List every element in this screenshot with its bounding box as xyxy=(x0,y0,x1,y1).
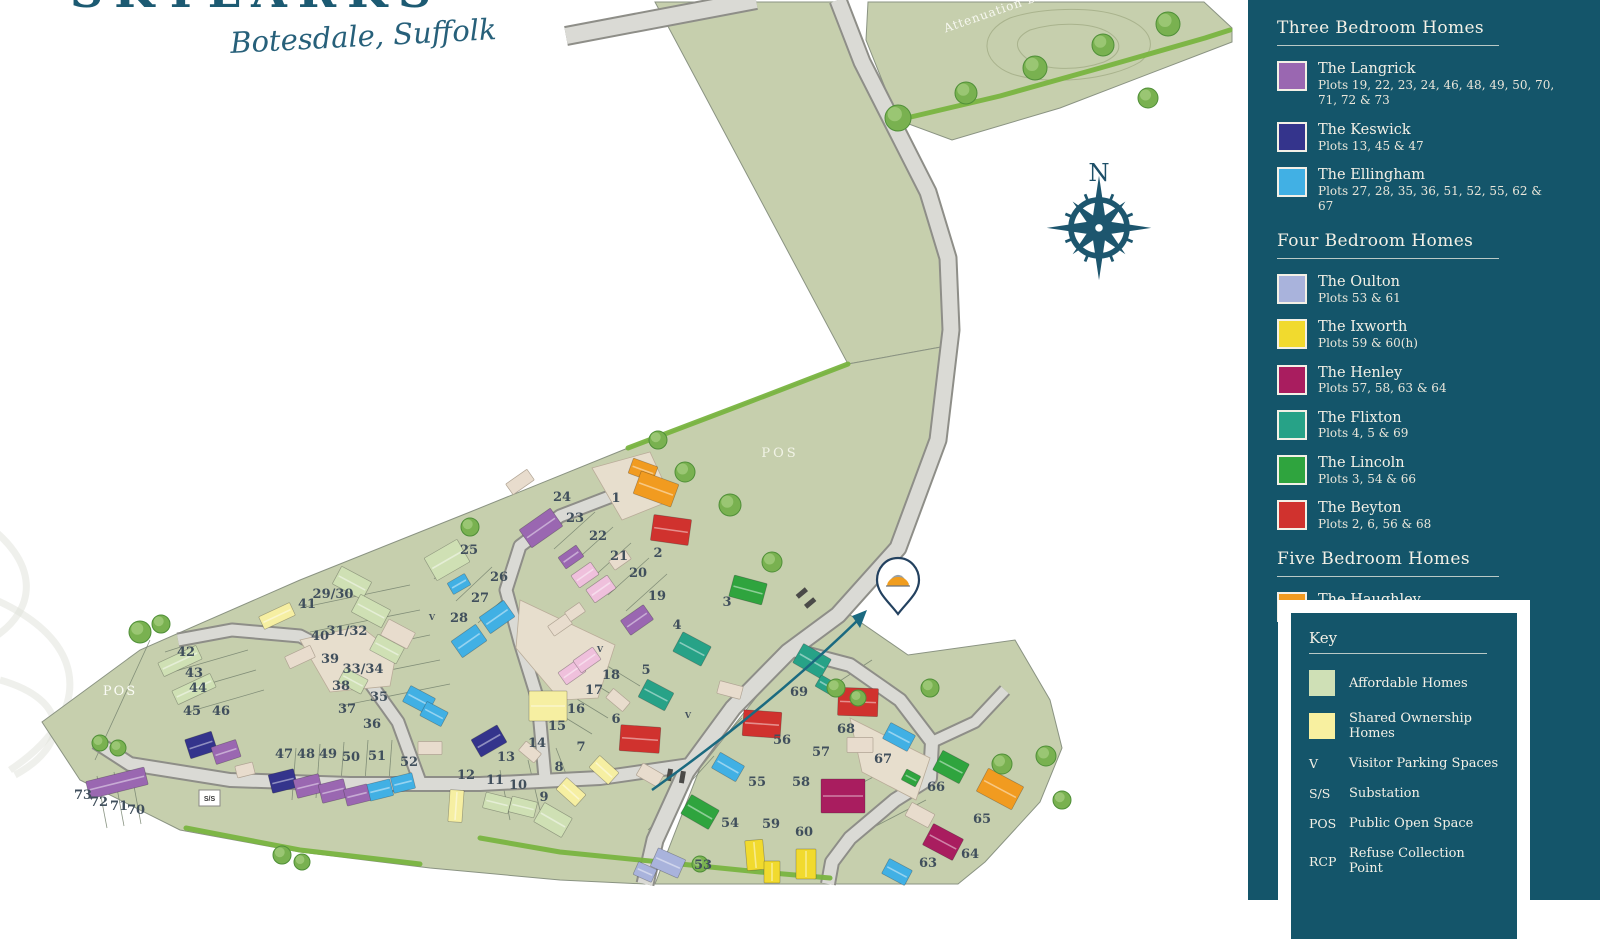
plot-number: 11 xyxy=(486,773,504,788)
section-heading-three-bed: Three Bedroom Homes xyxy=(1277,18,1572,38)
key-row-refuse-collection: RCP Refuse Collection Point xyxy=(1309,846,1499,876)
house-type-name: The Henley xyxy=(1318,365,1447,382)
house xyxy=(448,790,464,823)
house xyxy=(821,779,865,813)
substation-marker: S/S xyxy=(199,790,220,806)
plot-number: 31/32 xyxy=(327,624,368,639)
house-type-name: The Ellingham xyxy=(1318,167,1558,184)
house xyxy=(764,861,780,883)
heading-rule xyxy=(1277,258,1499,259)
legend-item-ellingham: The Ellingham Plots 27, 28, 35, 36, 51, … xyxy=(1277,167,1572,215)
langrick-swatch xyxy=(1277,61,1307,91)
keswick-swatch xyxy=(1277,122,1307,152)
plot-number: 59 xyxy=(762,817,780,832)
plot-number: 69 xyxy=(790,685,808,700)
plot-number: 41 xyxy=(298,597,316,612)
plot-number: 24 xyxy=(553,490,571,505)
key-row-affordable: Affordable Homes xyxy=(1309,670,1499,696)
oulton-swatch xyxy=(1277,274,1307,304)
tree-icon xyxy=(1156,12,1180,36)
plot-number: 9 xyxy=(539,790,548,805)
henley-swatch xyxy=(1277,365,1307,395)
house-type-plots: Plots 4, 5 & 69 xyxy=(1318,426,1408,442)
plot-number: 27 xyxy=(471,591,489,606)
plot-number: 33/34 xyxy=(343,662,384,677)
heading-rule xyxy=(1277,45,1499,46)
site-plan-page: { "title": {"name": "SKYLARKS", "locatio… xyxy=(0,0,1600,900)
tree-icon xyxy=(92,735,108,751)
ellingham-swatch xyxy=(1277,167,1307,197)
tree-icon xyxy=(992,754,1012,774)
development-brand: SKYLARKS Botesdale, Suffolk xyxy=(70,0,500,53)
plot-number: 54 xyxy=(721,816,739,831)
house-type-plots: Plots 53 & 61 xyxy=(1318,291,1401,307)
plot-number: 29/30 xyxy=(313,587,354,602)
tree-icon xyxy=(850,690,866,706)
ixworth-swatch xyxy=(1277,319,1307,349)
house xyxy=(619,725,661,754)
tree-icon xyxy=(955,82,977,104)
decorative-arc xyxy=(0,520,26,640)
tree-icon xyxy=(1092,34,1114,56)
plot-number: 36 xyxy=(363,717,381,732)
plot-number: 49 xyxy=(319,747,337,762)
tree-icon xyxy=(675,462,695,482)
tree-icon xyxy=(762,552,782,572)
key-panel: Key Affordable Homes Shared Ownership Ho… xyxy=(1278,600,1530,952)
legend-item-beyton: The Beyton Plots 2, 6, 56 & 68 xyxy=(1277,500,1572,532)
development-location: Botesdale, Suffolk xyxy=(229,12,500,60)
house-type-name: The Oulton xyxy=(1318,274,1401,291)
plot-number: 4 xyxy=(672,618,681,633)
tree-icon xyxy=(129,621,151,643)
plot-number: 23 xyxy=(566,511,584,526)
tree-icon xyxy=(110,740,126,756)
legend-sidebar: Three Bedroom Homes The Langrick Plots 1… xyxy=(1248,0,1600,900)
legend-item-henley: The Henley Plots 57, 58, 63 & 64 xyxy=(1277,365,1572,397)
svg-text:S/S: S/S xyxy=(204,796,216,803)
legend-item-lincoln: The Lincoln Plots 3, 54 & 66 xyxy=(1277,455,1572,487)
key-label: Substation xyxy=(1349,786,1420,801)
plot-number: 19 xyxy=(648,589,666,604)
flixton-swatch xyxy=(1277,410,1307,440)
house xyxy=(796,849,816,879)
plot-number: 58 xyxy=(792,775,810,790)
plot-number: 13 xyxy=(497,750,515,765)
plot-number: 64 xyxy=(961,847,979,862)
plot-number: 21 xyxy=(610,549,628,564)
plot-number: 47 xyxy=(275,747,293,762)
plot-number: 50 xyxy=(342,750,360,765)
legend-item-flixton: The Flixton Plots 4, 5 & 69 xyxy=(1277,410,1572,442)
key-label: Refuse Collection Point xyxy=(1349,846,1499,876)
plot-number: 6 xyxy=(611,712,620,727)
key-label: Public Open Space xyxy=(1349,816,1473,831)
tree-icon xyxy=(649,431,667,449)
garage-block xyxy=(418,742,442,755)
tree-icon xyxy=(461,518,479,536)
key-symbol: POS xyxy=(1309,816,1339,831)
visitor-parking-label: V xyxy=(596,644,604,654)
pos-label-left: POS xyxy=(103,684,137,699)
plot-number: 46 xyxy=(212,704,230,719)
legend-item-langrick: The Langrick Plots 19, 22, 23, 24, 46, 4… xyxy=(1277,61,1572,109)
key-row-visitor-parking: V Visitor Parking Spaces xyxy=(1309,756,1499,771)
plot-number: 39 xyxy=(321,652,339,667)
tree-icon xyxy=(1036,746,1056,766)
house-type-plots: Plots 3, 54 & 66 xyxy=(1318,472,1416,488)
key-symbol: RCP xyxy=(1309,854,1339,869)
plot-number: 3 xyxy=(722,595,731,610)
plot-number: 42 xyxy=(177,645,195,660)
tree-icon xyxy=(273,846,291,864)
house xyxy=(529,691,567,721)
key-heading: Key xyxy=(1309,629,1499,647)
plot-number: 7 xyxy=(576,740,585,755)
key-symbol: V xyxy=(1309,756,1339,771)
plot-number: 16 xyxy=(567,702,585,717)
tree-icon xyxy=(152,615,170,633)
house-type-name: The Lincoln xyxy=(1318,455,1416,472)
plot-number: 52 xyxy=(400,755,418,770)
garage-block xyxy=(847,738,873,753)
house-type-plots: Plots 2, 6, 56 & 68 xyxy=(1318,517,1431,533)
plot-number: 48 xyxy=(297,747,315,762)
tree-icon xyxy=(294,854,310,870)
plot-number: 17 xyxy=(585,683,603,698)
plot-number: 14 xyxy=(528,736,546,751)
plot-number: 43 xyxy=(185,666,203,681)
plot-number: 45 xyxy=(183,704,201,719)
beyton-swatch xyxy=(1277,500,1307,530)
key-row-shared-ownership: Shared Ownership Homes xyxy=(1309,711,1499,741)
lincoln-swatch xyxy=(1277,455,1307,485)
plot-number: 63 xyxy=(919,856,937,871)
key-row-substation: S/S Substation xyxy=(1309,786,1499,801)
tree-icon xyxy=(921,679,939,697)
plot-number: 67 xyxy=(874,752,892,767)
plot-number: 28 xyxy=(450,611,468,626)
legend-item-keswick: The Keswick Plots 13, 45 & 47 xyxy=(1277,122,1572,154)
plot-number: 5 xyxy=(641,663,650,678)
house xyxy=(650,514,691,545)
house-type-plots: Plots 19, 22, 23, 24, 46, 48, 49, 50, 70… xyxy=(1318,78,1558,109)
plot-number: 56 xyxy=(773,733,791,748)
visitor-parking-label: V xyxy=(428,612,436,622)
plot-number: 71 xyxy=(110,799,128,814)
plot-number: 26 xyxy=(490,570,508,585)
plot-number: 22 xyxy=(589,529,607,544)
plot-number: 57 xyxy=(812,745,830,760)
tree-icon xyxy=(1138,88,1158,108)
section-heading-four-bed: Four Bedroom Homes xyxy=(1277,231,1572,251)
house xyxy=(745,839,766,870)
site-plan-map: S/S1234567891011121314151617181920212223… xyxy=(0,0,1248,900)
plot-number: 12 xyxy=(457,768,475,783)
tree-icon xyxy=(827,679,845,697)
house-type-name: The Keswick xyxy=(1318,122,1424,139)
pos-label-center: POS xyxy=(761,446,798,461)
house-type-name: The Beyton xyxy=(1318,500,1431,517)
house-type-name: The Ixworth xyxy=(1318,319,1418,336)
plot-number: 1 xyxy=(611,491,620,506)
plot-number: 25 xyxy=(460,543,478,558)
legend-item-oulton: The Oulton Plots 53 & 61 xyxy=(1277,274,1572,306)
legend-item-ixworth: The Ixworth Plots 59 & 60(h) xyxy=(1277,319,1572,351)
plot-number: 38 xyxy=(332,679,350,694)
affordable-swatch xyxy=(1309,670,1335,696)
section-heading-five-bed: Five Bedroom Homes xyxy=(1277,549,1572,569)
plot-number: 53 xyxy=(694,858,712,873)
plot-number: 18 xyxy=(602,668,620,683)
key-symbol: S/S xyxy=(1309,786,1339,801)
plot-number: 20 xyxy=(629,566,647,581)
house-type-name: The Flixton xyxy=(1318,410,1408,427)
plot-number: 55 xyxy=(748,775,766,790)
heading-rule xyxy=(1277,576,1499,577)
plot-number: 2 xyxy=(653,546,662,561)
tree-icon xyxy=(885,105,911,131)
compass-rose: N xyxy=(1043,155,1155,297)
plot-number: 37 xyxy=(338,702,356,717)
key-row-public-open-space: POS Public Open Space xyxy=(1309,816,1499,831)
plot-number: 72 xyxy=(90,795,108,810)
visitor-parking-label: V xyxy=(684,710,692,720)
house-type-plots: Plots 59 & 60(h) xyxy=(1318,336,1418,352)
shared-ownership-swatch xyxy=(1309,713,1335,739)
plot-number: 15 xyxy=(548,719,566,734)
location-pin[interactable] xyxy=(877,558,919,614)
house-type-plots: Plots 57, 58, 63 & 64 xyxy=(1318,381,1447,397)
house-type-plots: Plots 27, 28, 35, 36, 51, 52, 55, 62 & 6… xyxy=(1318,184,1558,215)
plot-number: 70 xyxy=(127,803,145,818)
plot-number: 65 xyxy=(973,812,991,827)
plot-number: 40 xyxy=(311,629,329,644)
plot-number: 44 xyxy=(189,681,207,696)
house-type-name: The Langrick xyxy=(1318,61,1558,78)
plot-number: 35 xyxy=(370,690,388,705)
plot-number: 51 xyxy=(368,749,386,764)
key-label: Shared Ownership Homes xyxy=(1349,711,1499,741)
plot-number: 66 xyxy=(927,780,945,795)
key-rule xyxy=(1309,653,1487,654)
tree-icon xyxy=(1053,791,1071,809)
plot-number: 8 xyxy=(554,760,563,775)
plot-number: 73 xyxy=(74,788,92,803)
plot-number: 10 xyxy=(509,778,527,793)
key-label: Affordable Homes xyxy=(1349,676,1468,691)
tree-icon xyxy=(1023,56,1047,80)
house-type-plots: Plots 13, 45 & 47 xyxy=(1318,139,1424,155)
plot-number: 60 xyxy=(795,825,813,840)
plot-number: 68 xyxy=(837,722,855,737)
tree-icon xyxy=(719,494,741,516)
key-label: Visitor Parking Spaces xyxy=(1349,756,1498,771)
compass-star xyxy=(1047,176,1152,281)
